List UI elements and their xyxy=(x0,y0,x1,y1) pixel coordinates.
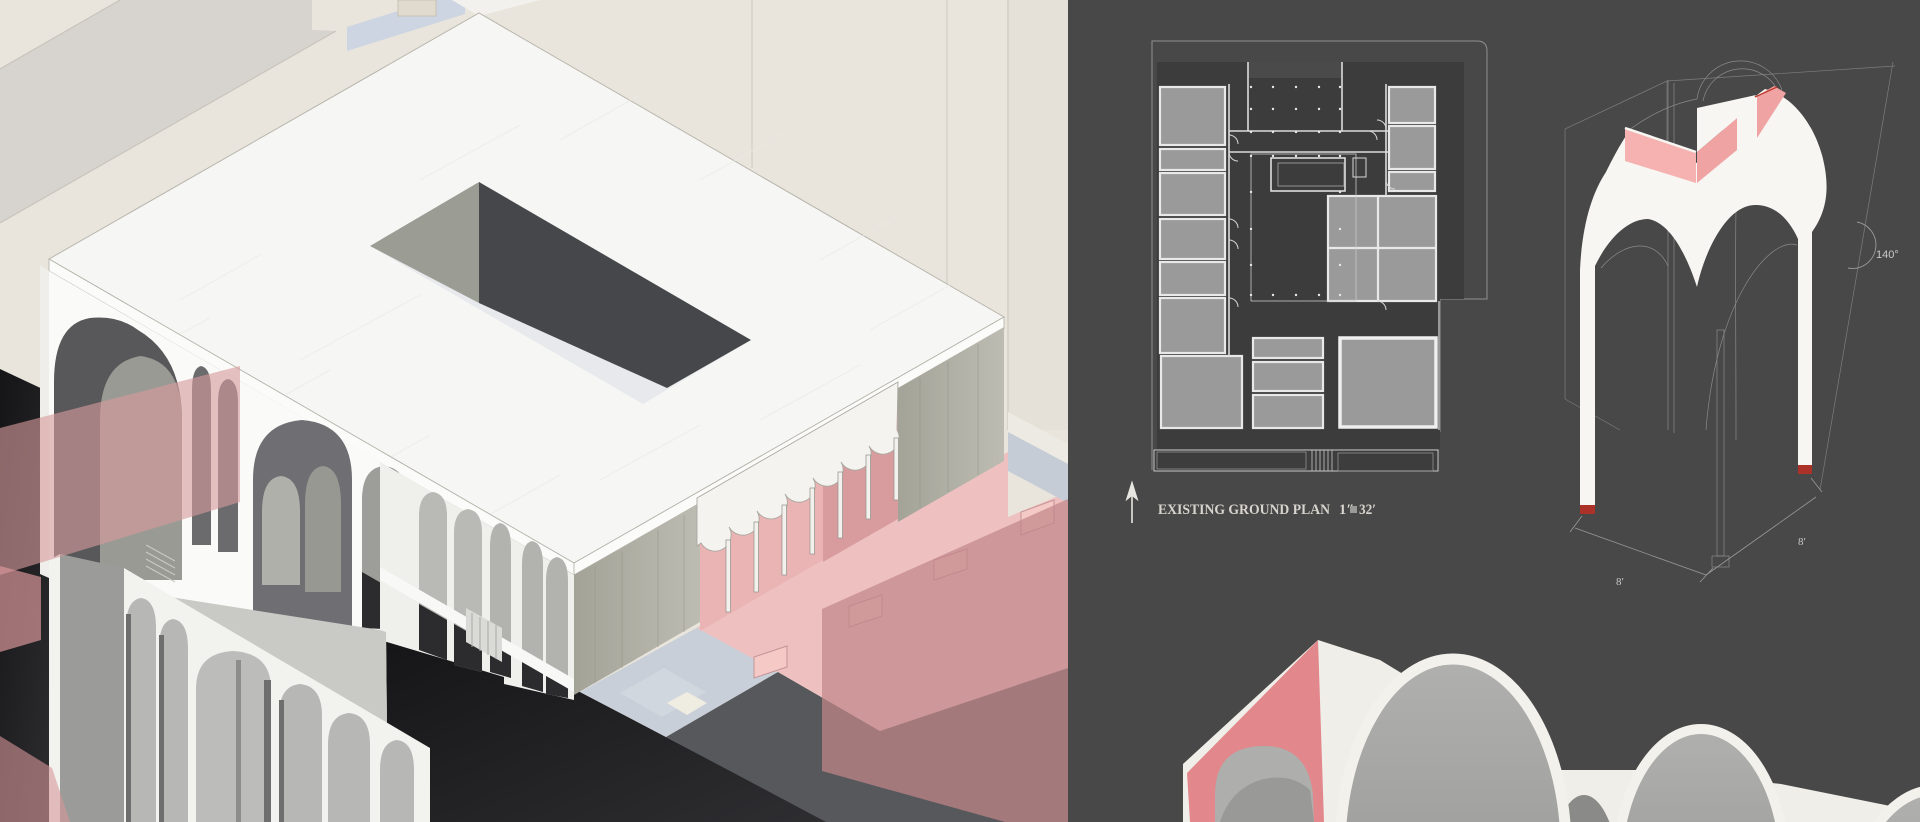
svg-text:8′: 8′ xyxy=(1616,576,1624,588)
svg-text:8′: 8′ xyxy=(1798,536,1806,548)
svg-text:EXISTING GROUND PLAN: EXISTING GROUND PLAN xyxy=(1158,502,1330,518)
svg-text:32′: 32′ xyxy=(1359,502,1376,518)
svg-text:140°: 140° xyxy=(1876,249,1899,261)
